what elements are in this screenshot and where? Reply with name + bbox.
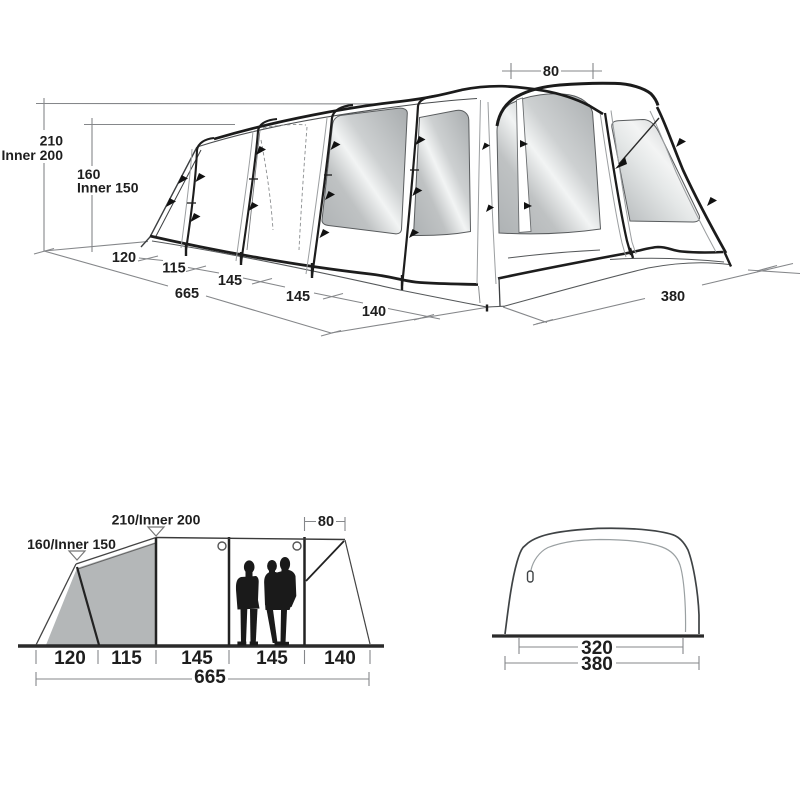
svg-text:665: 665 (194, 667, 226, 688)
svg-text:Inner 200: Inner 200 (2, 147, 64, 163)
svg-text:115: 115 (162, 261, 185, 277)
svg-text:120: 120 (54, 648, 86, 669)
svg-text:145: 145 (181, 648, 213, 669)
svg-text:380: 380 (661, 289, 685, 305)
svg-text:210/Inner 200: 210/Inner 200 (112, 512, 201, 528)
svg-text:115: 115 (111, 648, 142, 669)
svg-text:140: 140 (362, 304, 386, 320)
svg-text:145: 145 (286, 289, 310, 305)
svg-text:80: 80 (543, 64, 559, 80)
svg-text:120: 120 (112, 250, 136, 266)
svg-text:145: 145 (256, 648, 288, 669)
svg-text:140: 140 (324, 648, 356, 669)
svg-text:665: 665 (175, 286, 199, 302)
svg-text:380: 380 (581, 654, 613, 675)
svg-text:145: 145 (218, 273, 242, 289)
svg-text:Inner 150: Inner 150 (77, 180, 139, 196)
svg-text:160/Inner 150: 160/Inner 150 (27, 536, 116, 552)
svg-text:80: 80 (318, 514, 334, 530)
